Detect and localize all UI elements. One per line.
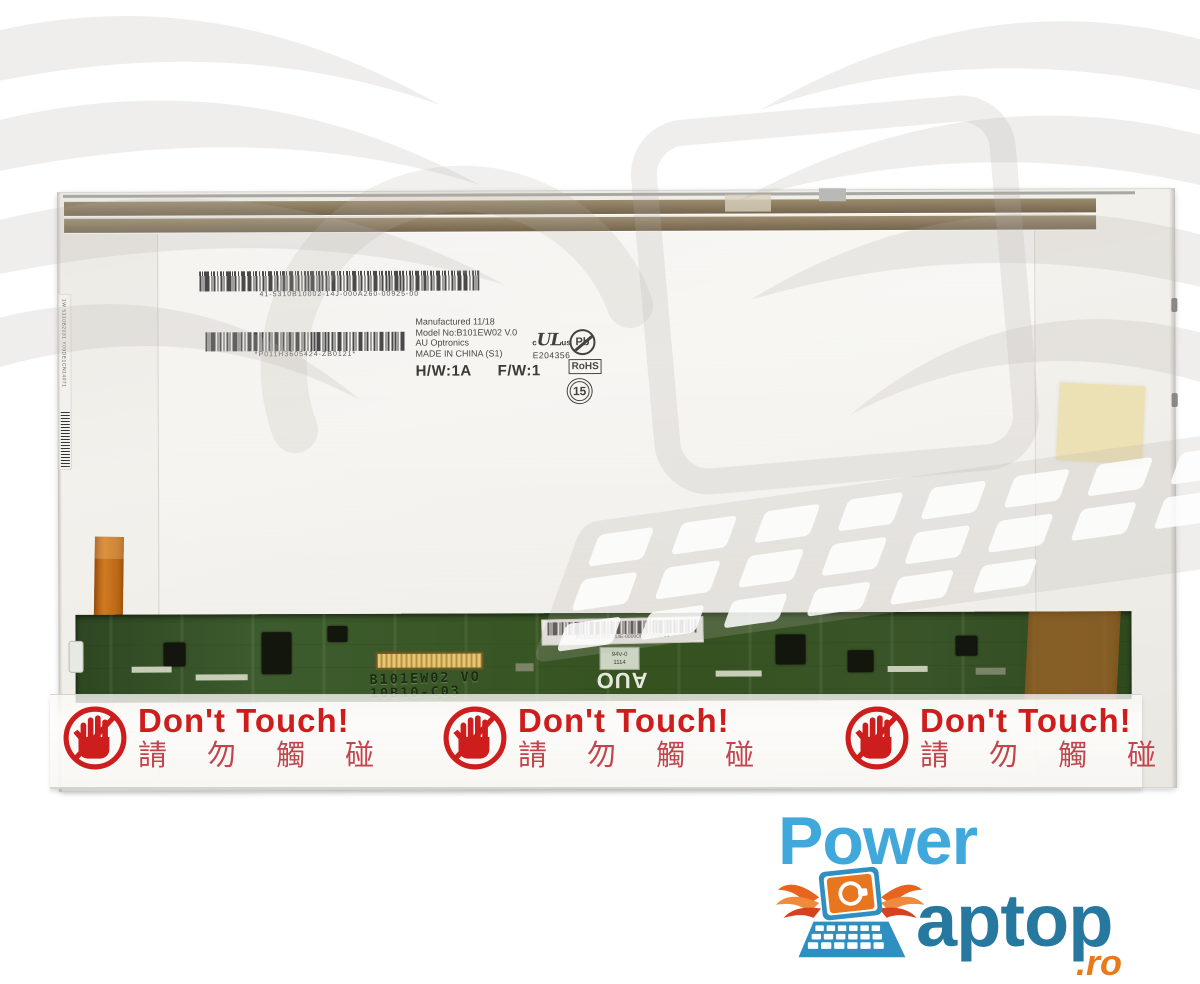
lot-barcode: *P011H3605424-ZB0121* [205, 332, 405, 359]
ic-chip [956, 636, 978, 656]
rohs-mark: RoHS [569, 359, 602, 374]
barcode-stripes [205, 332, 405, 352]
lot-barcode-text: *P011H3605424-ZB0121* [206, 351, 406, 359]
smd-row [888, 666, 928, 672]
dont-touch-label-1: Don't Touch! 請 勿 觸 碰 [62, 703, 390, 773]
powerlaptop-logo: Power [776, 806, 1156, 982]
warning-texts: Don't Touch! 請 勿 觸 碰 [518, 703, 770, 773]
mount-notch-2 [1172, 393, 1178, 407]
dont-touch-label-3: Don't Touch! 請 勿 觸 碰 [844, 703, 1172, 773]
dont-touch-title: Don't Touch! [920, 703, 1172, 739]
ic-chip [164, 643, 186, 667]
panel-top-rail [63, 191, 1135, 198]
warning-texts: Don't Touch! 請 勿 觸 碰 [920, 703, 1172, 773]
auo-logo-upside-down: AUO [596, 667, 648, 693]
smd-row [976, 668, 1006, 675]
dont-touch-chinese: 請 勿 觸 碰 [138, 739, 390, 773]
gold-lvds-connector [376, 651, 484, 669]
logo-tld-ro: .ro [1076, 942, 1122, 984]
cream-tape-patch [1056, 382, 1146, 464]
no-touch-hand-icon [62, 705, 128, 771]
no-touch-hand-icon [442, 705, 508, 771]
winged-laptop-icon [776, 860, 926, 972]
serial-barcode-text: 41-5310B10002-14J-000A260-00925-00 [199, 290, 479, 298]
dont-touch-title: Don't Touch! [138, 703, 390, 739]
smd-row [132, 667, 172, 673]
product-photo: 41-5310B10002-14J-000A260-00925-00 *P011… [0, 0, 1200, 984]
ic-chip [776, 634, 806, 664]
pb-text: Pb [575, 336, 589, 348]
ratings-line2: 1114 [601, 659, 639, 667]
serial-barcode: 41-5310B10002-14J-000A260-00925-00 [199, 270, 479, 298]
smd-row [196, 674, 248, 680]
dont-touch-label-2: Don't Touch! 請 勿 觸 碰 [442, 703, 770, 773]
kapton-tape [1024, 611, 1120, 699]
copper-tape-strip-1 [64, 198, 1096, 216]
dont-touch-chinese: 請 勿 觸 碰 [920, 739, 1172, 773]
ic-chip [848, 650, 874, 672]
ratings-line1: 94V-0 [601, 651, 639, 659]
spec-hw-fw: H/W:1AF/W:1 [416, 362, 671, 380]
warning-texts: Don't Touch! 請 勿 觸 碰 [138, 703, 390, 773]
smd-row [516, 663, 534, 671]
spec-hw: H/W:1A [416, 363, 472, 380]
pcb-barcode-label: P8-5510B10C03-14E-0000OD0-02195-04 [541, 616, 704, 645]
mount-notch-1 [1171, 298, 1177, 312]
recycle-years: 15 [573, 384, 586, 398]
panel-right-edge [1169, 188, 1177, 788]
driver-pcb: B101EW02 VO 10B10-C03 P8-5510B10C03-14E-… [75, 611, 1131, 703]
pb-free-icon: Pb [569, 329, 595, 355]
dont-touch-chinese: 請 勿 觸 碰 [518, 739, 770, 773]
spec-fw: F/W:1 [498, 362, 541, 379]
barcode-stripes [199, 270, 479, 291]
no-touch-hand-icon [844, 705, 910, 771]
top-tape-patch [725, 194, 771, 211]
ic-chip [261, 632, 291, 674]
side-vertical-label: 1W 5310B2031 Y09DE1CN14071 [58, 294, 72, 470]
top-metal-tab [819, 188, 846, 201]
side-label-barcode [61, 411, 70, 467]
china-recycle-15-icon: 15 [567, 378, 593, 404]
ul-logo: UL [537, 330, 562, 350]
side-label-text: 1W 5310B2031 Y09DE1CN14071 [60, 299, 66, 388]
protective-warning-tape: Don't Touch! 請 勿 觸 碰 Don't Touch! 請 [50, 694, 1142, 789]
ic-chip [327, 626, 347, 642]
pcb-left-connector [69, 641, 84, 673]
smd-row [716, 670, 762, 676]
dont-touch-title: Don't Touch! [518, 703, 770, 739]
